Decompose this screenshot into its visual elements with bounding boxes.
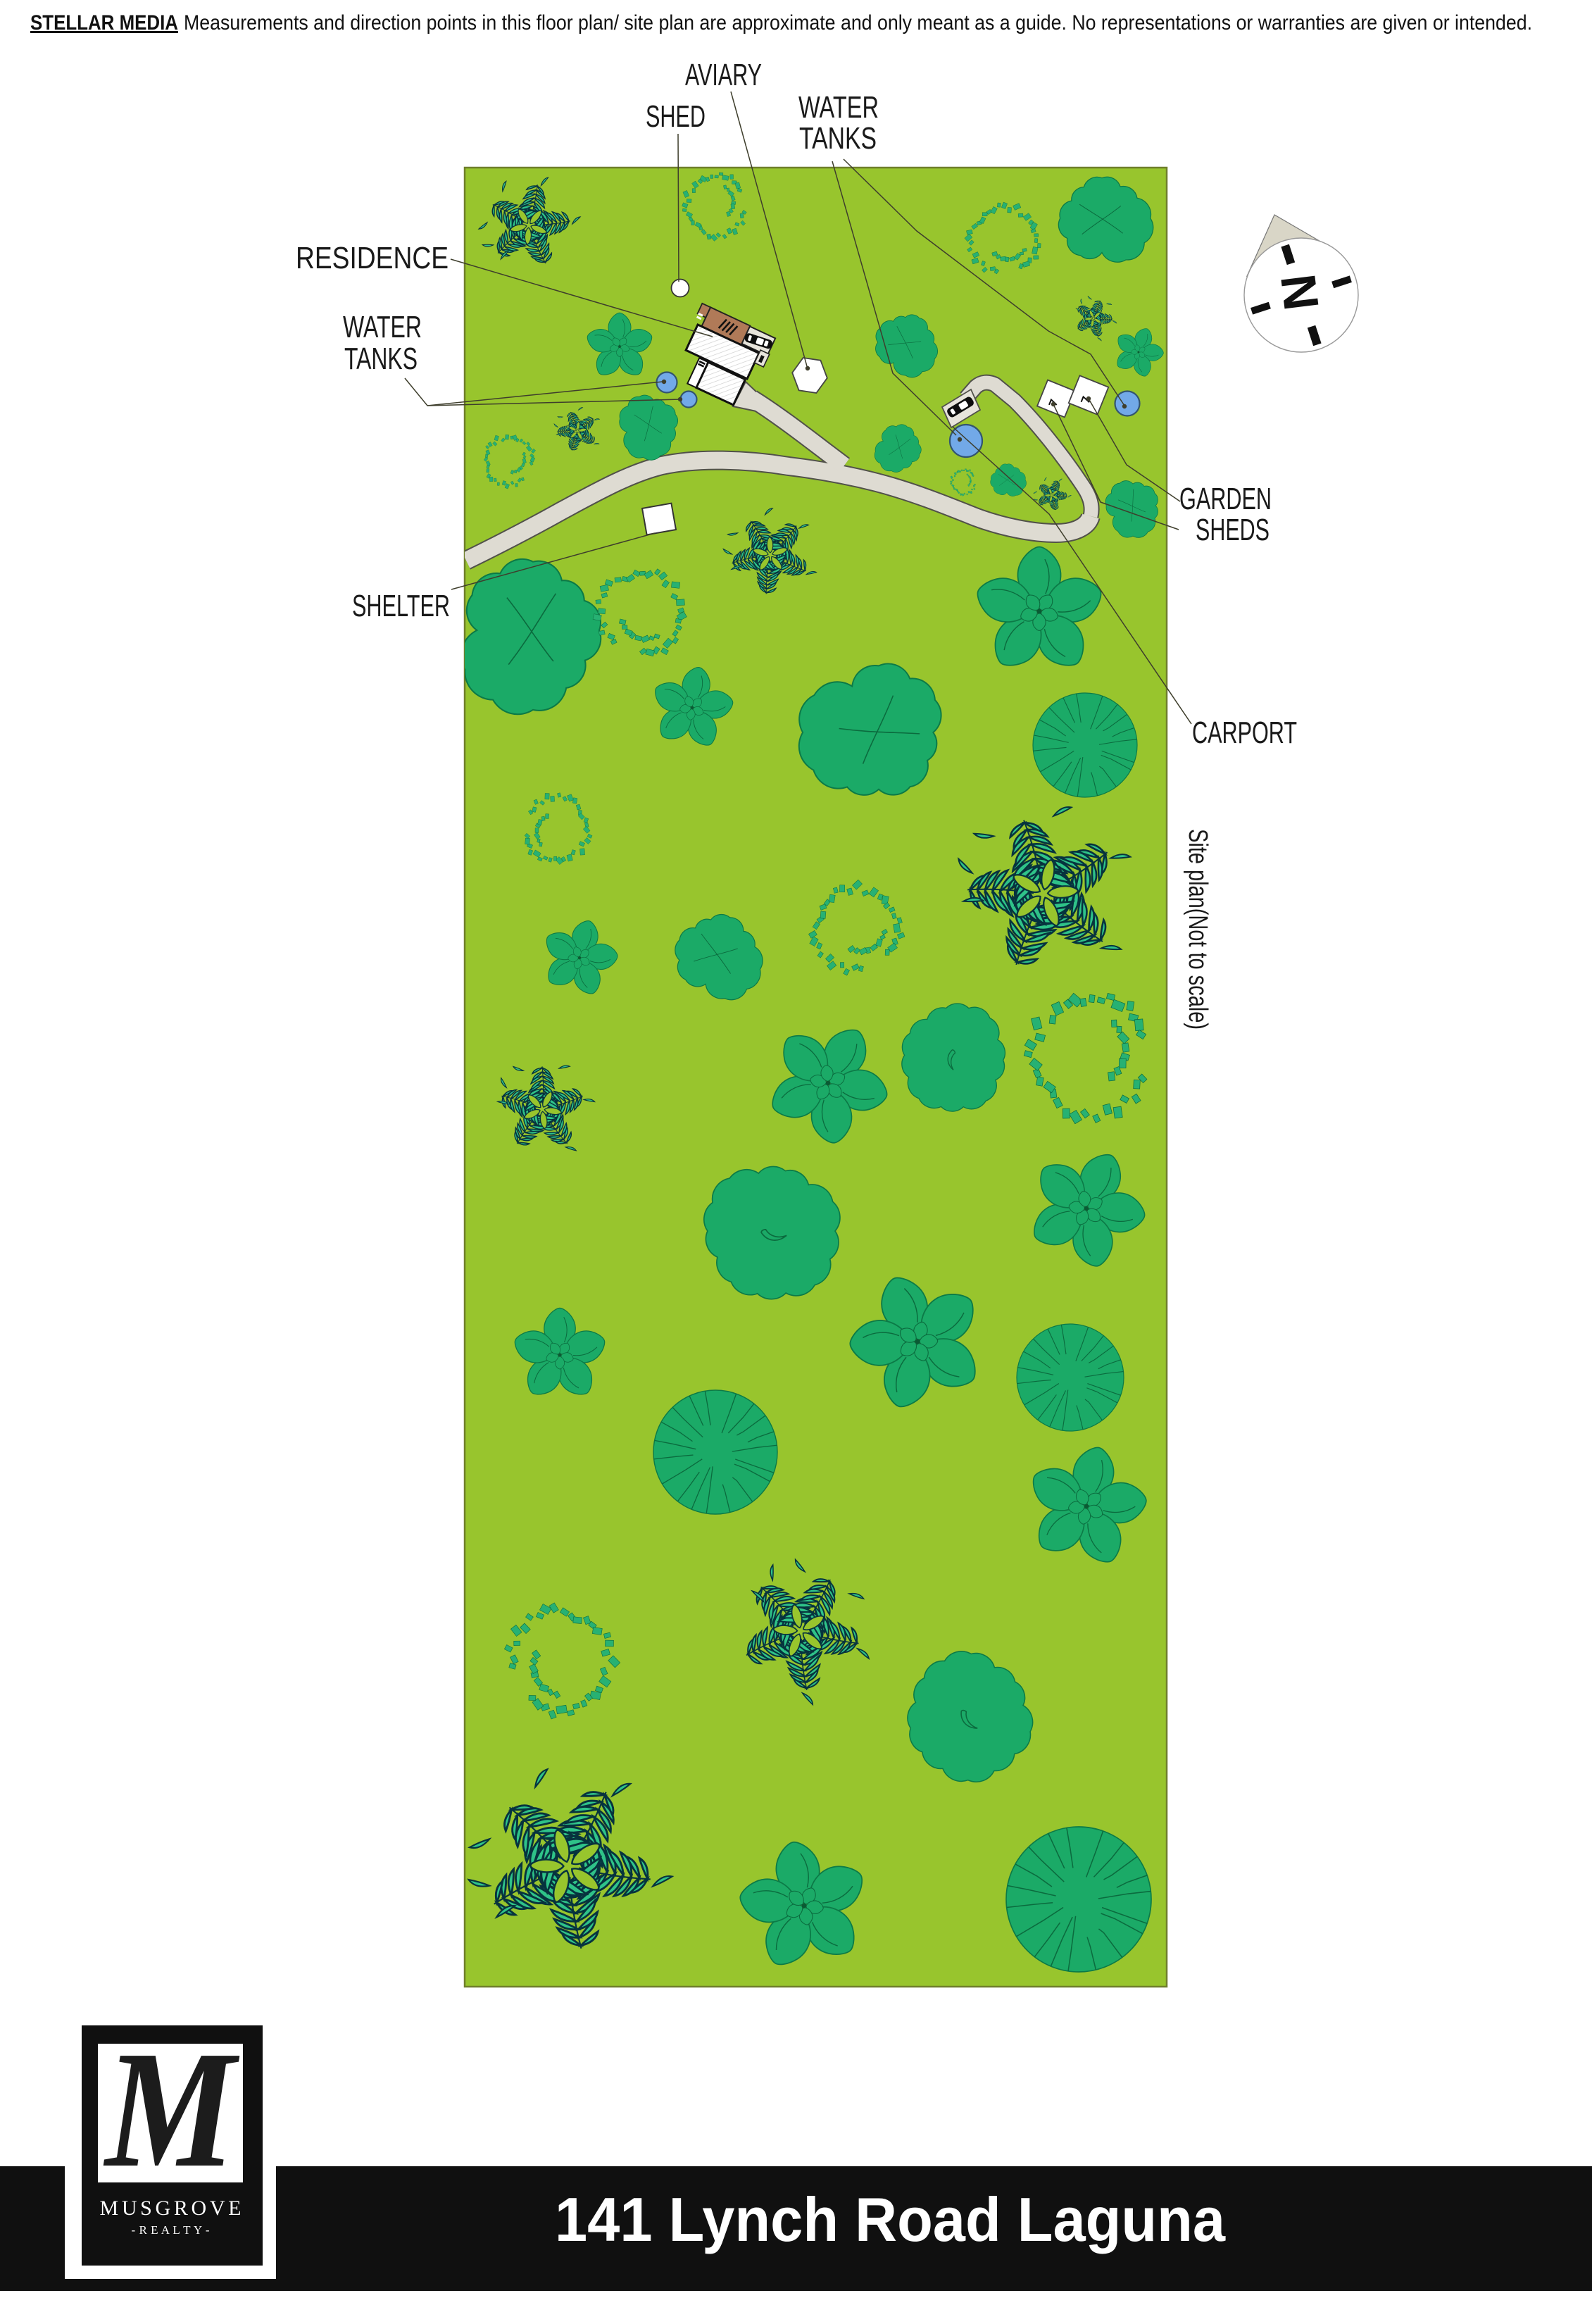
svg-text:Measurements and direction poi: Measurements and direction points in thi… [184,11,1532,35]
svg-text:TANKS: TANKS [344,342,418,376]
svg-text:Site plan(Not to scale): Site plan(Not to scale) [1183,829,1212,1030]
svg-text:TANKS: TANKS [799,121,877,156]
svg-text:GARDEN: GARDEN [1179,482,1272,516]
svg-text:141 Lynch Road Laguna: 141 Lynch Road Laguna [555,2185,1226,2254]
svg-text:STELLAR MEDIA: STELLAR MEDIA [30,11,178,35]
svg-text:SHELTER: SHELTER [352,589,450,623]
svg-text:M: M [103,2017,240,2202]
svg-text:AVIARY: AVIARY [685,58,762,92]
svg-text:SHED: SHED [646,99,706,134]
svg-text:WATER: WATER [798,90,879,125]
svg-text:WATER: WATER [343,310,422,344]
svg-text:RESIDENCE: RESIDENCE [296,241,449,275]
svg-text:SHEDS: SHEDS [1196,513,1270,547]
svg-text:N: N [1270,271,1329,313]
svg-text:CARPORT: CARPORT [1192,716,1297,750]
svg-text:- R E A L T Y -: - R E A L T Y - [132,2223,210,2237]
